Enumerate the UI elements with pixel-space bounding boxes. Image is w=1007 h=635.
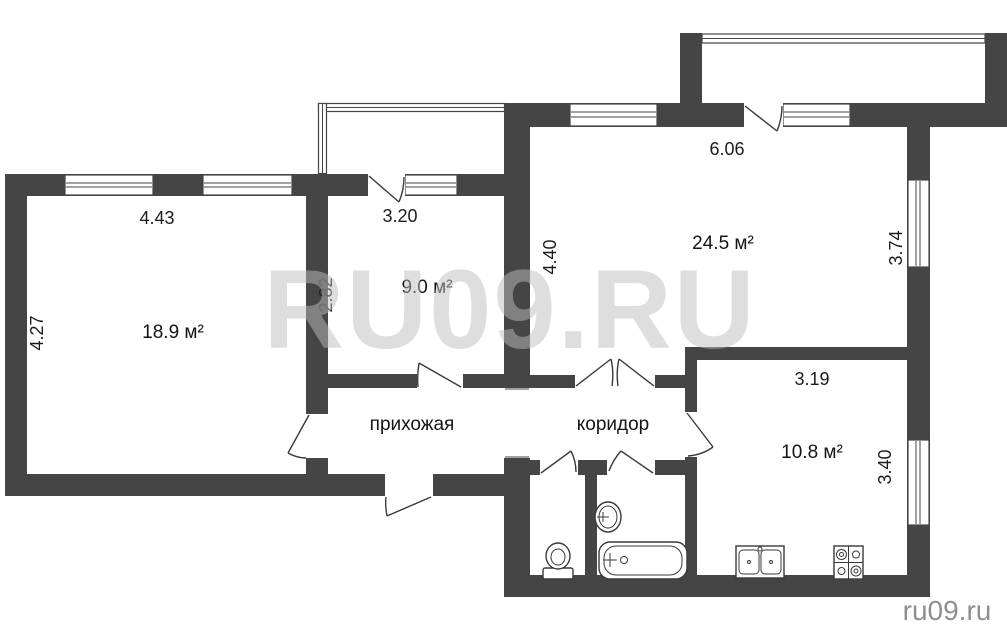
floorplan-page: 18.9 м² 9.0 м² 24.5 м² 10.8 м² прихожая … bbox=[0, 0, 1007, 635]
dim-hall-depth-right: 3.74 bbox=[886, 230, 906, 265]
hall-balcony-door bbox=[744, 103, 783, 131]
wall bbox=[985, 33, 1007, 127]
entrance-door bbox=[385, 474, 433, 516]
dim-kitchen-width: 3.19 bbox=[794, 369, 829, 389]
dim-living-width: 4.43 bbox=[139, 208, 174, 228]
toilet-icon bbox=[543, 543, 573, 579]
stove-icon bbox=[834, 546, 863, 579]
balcony-door bbox=[368, 174, 405, 202]
window bbox=[908, 180, 929, 267]
wall bbox=[504, 103, 930, 127]
dim-living-depth: 4.27 bbox=[27, 315, 47, 350]
corridor-label: коридор bbox=[577, 414, 650, 435]
kitchen-area-label: 10.8 м² bbox=[781, 442, 843, 463]
floor-plan-image: 18.9 м² 9.0 м² 24.5 м² 10.8 м² прихожая … bbox=[0, 0, 1007, 635]
window bbox=[570, 104, 657, 126]
window bbox=[908, 440, 929, 525]
toilet-door bbox=[540, 451, 578, 475]
entry-corridor-opening bbox=[504, 388, 530, 458]
wall bbox=[504, 460, 697, 475]
living-room-door bbox=[288, 414, 328, 458]
watermark-text: RU09.RU bbox=[263, 247, 756, 372]
window bbox=[783, 104, 850, 126]
bathroom-door bbox=[607, 451, 655, 475]
dim-hall-width: 6.06 bbox=[709, 139, 744, 159]
bathtub-icon bbox=[599, 542, 687, 579]
entry-label: прихожая bbox=[370, 414, 455, 435]
window bbox=[65, 175, 153, 195]
kitchen-door bbox=[685, 412, 713, 457]
living-area-label: 18.9 м² bbox=[142, 322, 204, 343]
dim-kitchen-depth: 3.40 bbox=[875, 449, 895, 484]
washbasin-icon bbox=[595, 502, 621, 532]
wall bbox=[585, 475, 597, 575]
window bbox=[405, 175, 457, 195]
wall bbox=[680, 33, 702, 103]
site-label: ru09.ru bbox=[903, 595, 992, 626]
wall bbox=[5, 174, 27, 496]
window bbox=[203, 175, 292, 195]
wall bbox=[328, 374, 504, 388]
dim-bedroom-width: 3.20 bbox=[382, 206, 417, 226]
kitchen-sink-icon bbox=[736, 546, 784, 578]
wall bbox=[930, 103, 985, 127]
